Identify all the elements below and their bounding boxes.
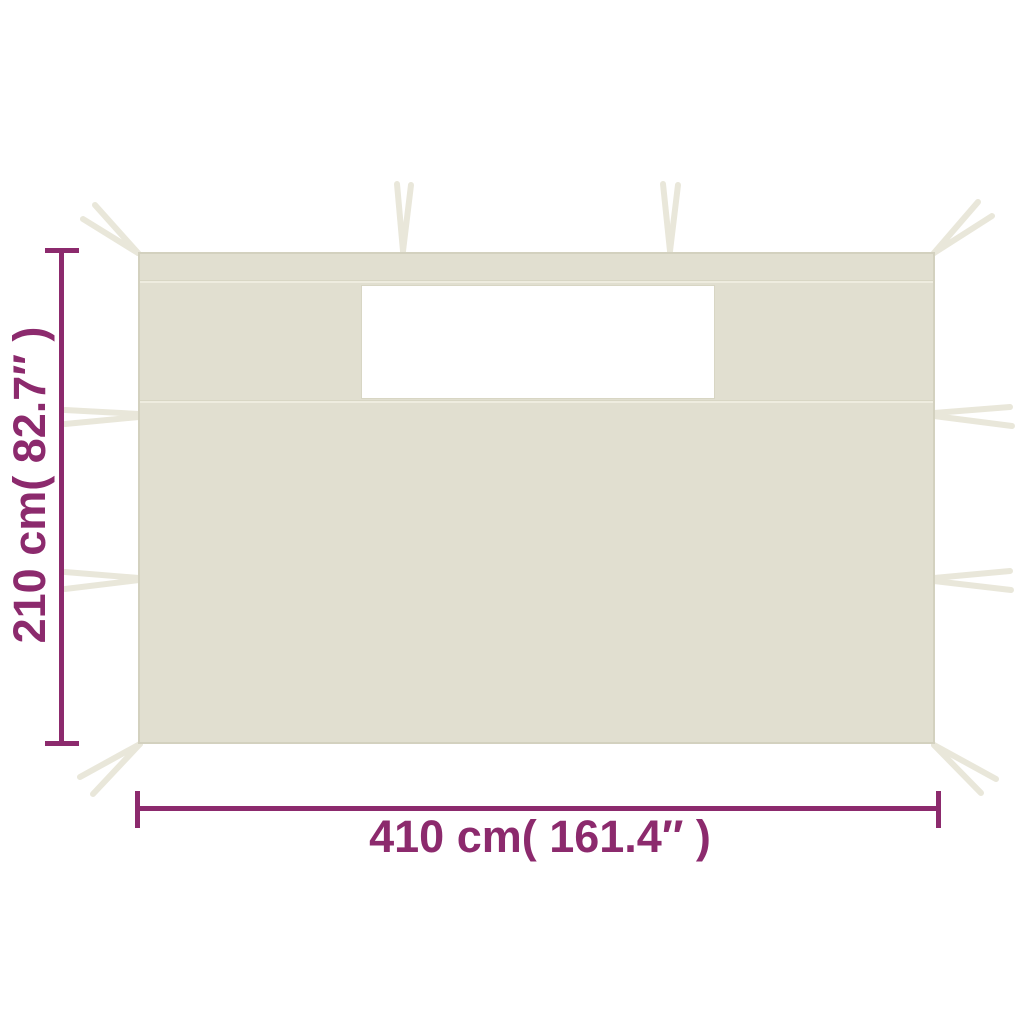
product-dimension-diagram: 210 cm( 82.7″ ) 410 cm( 161.4″ ) (0, 0, 1024, 1024)
tie-strap (934, 571, 1010, 578)
width-dimension-label: 410 cm( 161.4″ ) (369, 811, 711, 863)
tie-strap (934, 416, 1012, 426)
tie-strap (65, 417, 139, 424)
panel-middle-seam (140, 400, 933, 403)
height-dimension-bottom-cap (45, 741, 79, 746)
sidewall-panel (138, 252, 935, 744)
window-cutout (361, 285, 715, 399)
width-dimension-left-cap (135, 791, 140, 828)
tie-strap (65, 580, 139, 589)
tie-strap (403, 185, 411, 251)
width-dimension-right-cap (936, 791, 941, 828)
height-dimension-label: 210 cm( 82.7″ ) (4, 327, 56, 644)
tie-strap (65, 410, 139, 414)
height-dimension-line (59, 250, 64, 744)
tie-strap (670, 185, 678, 251)
height-dimension-top-cap (45, 248, 79, 253)
tie-strap (934, 407, 1010, 413)
tie-strap (934, 581, 1011, 590)
panel-top-seam (140, 280, 933, 283)
tie-strap (65, 572, 139, 578)
